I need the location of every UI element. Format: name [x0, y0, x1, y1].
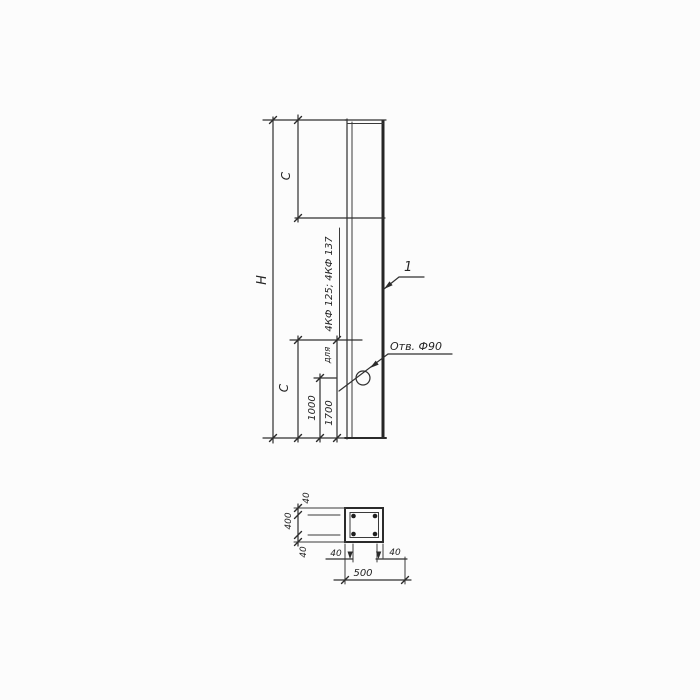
rebar-dot	[373, 514, 378, 519]
section-view: 40 400 40 40 40 500	[284, 492, 411, 584]
dim-label-40-right: 40	[389, 548, 401, 558]
section-outline	[345, 508, 383, 542]
dim-label-400: 400	[284, 512, 294, 529]
section-left-dimensions: 40 400 40	[284, 492, 346, 558]
dim-label-h: H	[255, 275, 270, 285]
rebar-dot	[373, 532, 378, 537]
hole-callout: Отв. Ф90	[339, 340, 452, 391]
dim-arrow-down-left	[348, 552, 353, 560]
dim-label-40-bottom: 40	[299, 546, 309, 558]
item-number-label: 1	[404, 260, 412, 275]
rebar-dot	[351, 532, 356, 537]
dim-label-40-top: 40	[302, 492, 312, 504]
dim-label-c-bottom: C	[277, 383, 291, 392]
rebar-dot	[351, 514, 356, 519]
elevation-view: H C C 1000 1700 для 4КФ 125; 4КФ 137 Отв…	[255, 115, 452, 443]
item-leader: 1	[384, 260, 424, 289]
column-outline	[345, 119, 386, 439]
rebar-dots	[351, 514, 377, 537]
dim-label-500: 500	[353, 568, 372, 579]
dim-label-1700: 1700	[324, 400, 335, 425]
dim-label-c-top: C	[279, 171, 293, 180]
section-bottom-dimensions: 40 40 500	[326, 544, 411, 584]
technical-drawing-canvas: H C C 1000 1700 для 4КФ 125; 4КФ 137 Отв…	[0, 0, 700, 700]
note-prefix-text: для	[323, 347, 333, 364]
dim-label-1000: 1000	[307, 395, 318, 420]
note-marks-text: 4КФ 125; 4КФ 137	[324, 236, 335, 332]
dim-label-40-left: 40	[330, 549, 342, 559]
hole-label: Отв. Ф90	[390, 340, 442, 353]
